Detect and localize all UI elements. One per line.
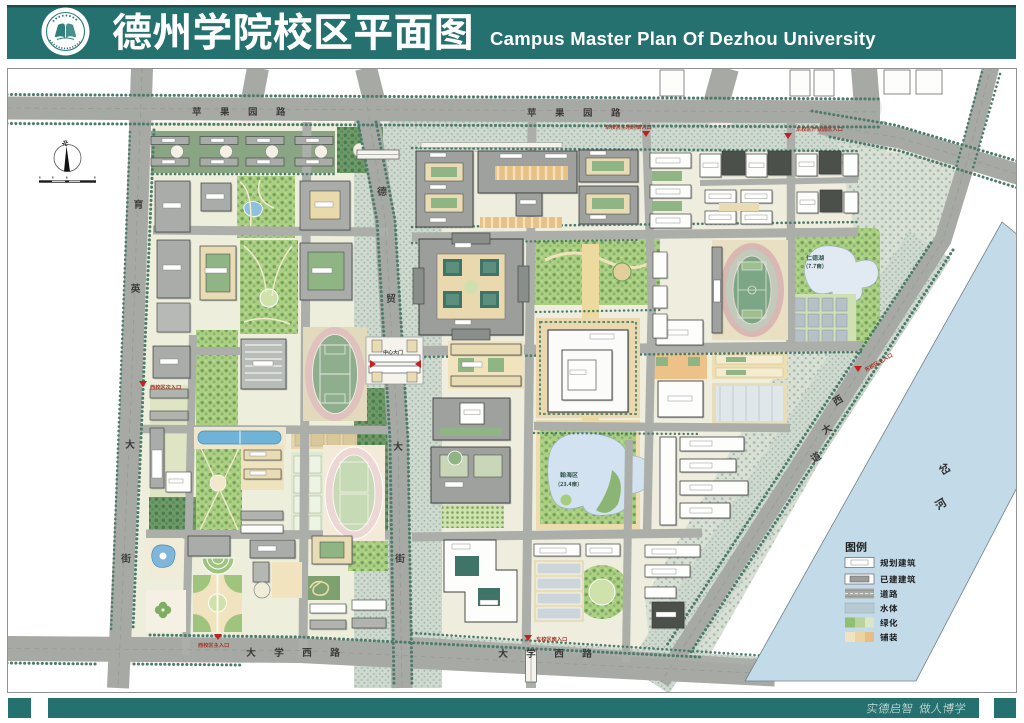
svg-text:Campus Master Plan Of Dezhou U: Campus Master Plan Of Dezhou University	[490, 28, 876, 49]
